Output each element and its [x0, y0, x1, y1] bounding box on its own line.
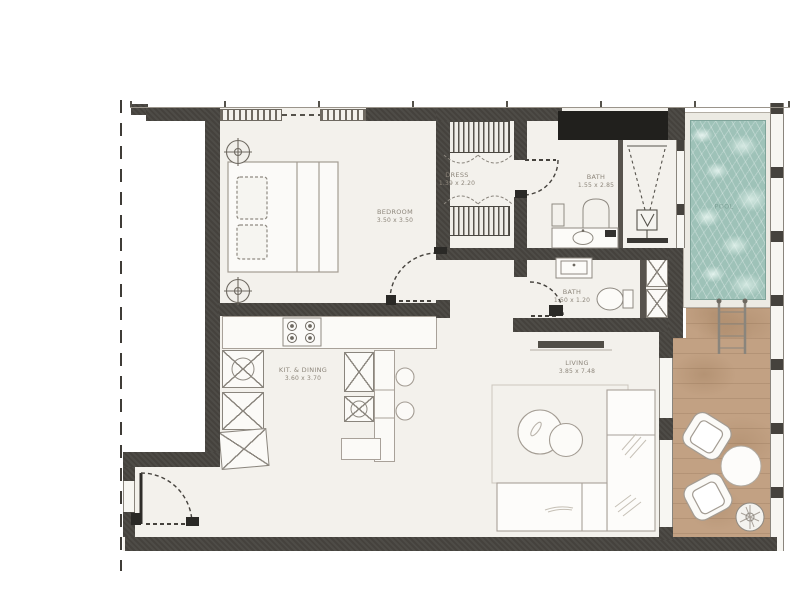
- balcony-deck: [672, 338, 772, 540]
- hall-closet-1: [646, 257, 668, 287]
- wall-top-bedroom-right: [366, 107, 436, 121]
- wall-pool-top-corner: [668, 107, 685, 140]
- roof-overhang-line: [130, 101, 790, 108]
- pool-left-wall: [676, 140, 685, 248]
- wall-top-dress-bath: [436, 107, 562, 121]
- wardrobe-bottom: [442, 206, 510, 236]
- kitchen-counter: [222, 316, 437, 349]
- wall-corridor-bath2: [514, 260, 527, 277]
- wall-entrance-left-b: [123, 512, 135, 537]
- service-shaft: [558, 111, 670, 140]
- floor-plan: BEDROOM 3.50 x 3.50 DRESS 1.39 x 2.20 BA…: [0, 0, 810, 604]
- wall-bedroom-kitchen: [218, 303, 438, 316]
- wardrobe-top: [442, 121, 510, 153]
- bedroom-window-b: [320, 109, 366, 121]
- bedroom-window-a: [220, 109, 282, 121]
- kitchen-sink-cabinet: [222, 350, 264, 388]
- wall-bottom: [125, 537, 777, 551]
- kitchen-cabinet: [222, 392, 264, 430]
- island-counter-end: [341, 438, 381, 460]
- pool-water: [690, 120, 766, 300]
- wall-tv: [513, 318, 683, 332]
- island-cabinet-2: [344, 396, 374, 422]
- wall-left-unit: [205, 107, 220, 457]
- wall-bath-shower: [618, 140, 623, 248]
- hall-closet-2: [646, 289, 668, 318]
- deck-under-pool: [686, 308, 772, 338]
- wall-bath2-pool: [668, 248, 683, 338]
- wall-entrance-top: [123, 452, 220, 467]
- wall-bath2-closet: [640, 260, 646, 318]
- wall-dress-bath-upper: [514, 121, 527, 160]
- glazing-mullion-bottom: [659, 527, 673, 540]
- glazing-mullion-mid: [659, 418, 673, 440]
- wall-entrance-left-a: [123, 467, 135, 481]
- wall-bedroom-corridor: [436, 121, 450, 252]
- kitchen-cabinet-tilted: [218, 428, 269, 470]
- island-cabinet-1: [344, 352, 374, 392]
- property-boundary-dashed-line: [120, 100, 122, 571]
- outer-right-wall: [770, 103, 784, 551]
- glazing-mullion-top: [659, 332, 673, 358]
- entrance-side-window: [123, 481, 135, 512]
- wall-corridor-stub: [436, 300, 450, 318]
- wall-under-dress-bath: [436, 248, 683, 260]
